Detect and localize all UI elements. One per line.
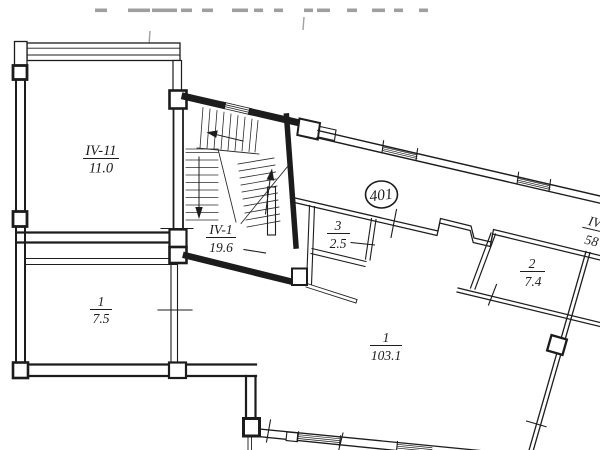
stair-window-hatch xyxy=(222,102,252,115)
room-labels: IV-11 11.0 IV-1 19.6 1 7.5 3 2.5 2 7.4 1… xyxy=(83,143,600,363)
room-iv1-label: IV-1 xyxy=(208,222,232,237)
room-iv11-area: 11.0 xyxy=(89,161,114,177)
room-iv-partial-area: 58 xyxy=(583,232,600,250)
room-iv-partial-label-group: IV 58 xyxy=(578,212,600,251)
faint-top-marks xyxy=(95,9,428,46)
room-75-area: 7.5 xyxy=(93,311,110,326)
floor-plan-canvas: IV-11 11.0 IV-1 19.6 1 7.5 3 2.5 2 7.4 1… xyxy=(0,0,600,450)
stairwell-walls xyxy=(185,97,307,286)
room-1031-area: 103.1 xyxy=(371,348,401,363)
room-75-label: 1 xyxy=(98,294,105,309)
divider-wall xyxy=(17,233,171,243)
room-25-area: 2.5 xyxy=(330,236,347,251)
room-74-label: 2 xyxy=(529,256,536,271)
room-74-area: 7.4 xyxy=(525,274,542,289)
room-25-label: 3 xyxy=(334,218,342,233)
window-hatch xyxy=(383,147,550,189)
room-iv11-label: IV-11 xyxy=(84,143,116,159)
room-1031-label: 1 xyxy=(383,330,390,345)
room-iv11-walls xyxy=(15,42,182,378)
right-exterior-wall xyxy=(297,119,600,204)
room-iv1-area: 19.6 xyxy=(209,240,233,255)
bottom-diagonal-wall xyxy=(259,420,491,450)
bottom-wall xyxy=(15,365,256,450)
unit-number: 401 xyxy=(368,186,393,206)
